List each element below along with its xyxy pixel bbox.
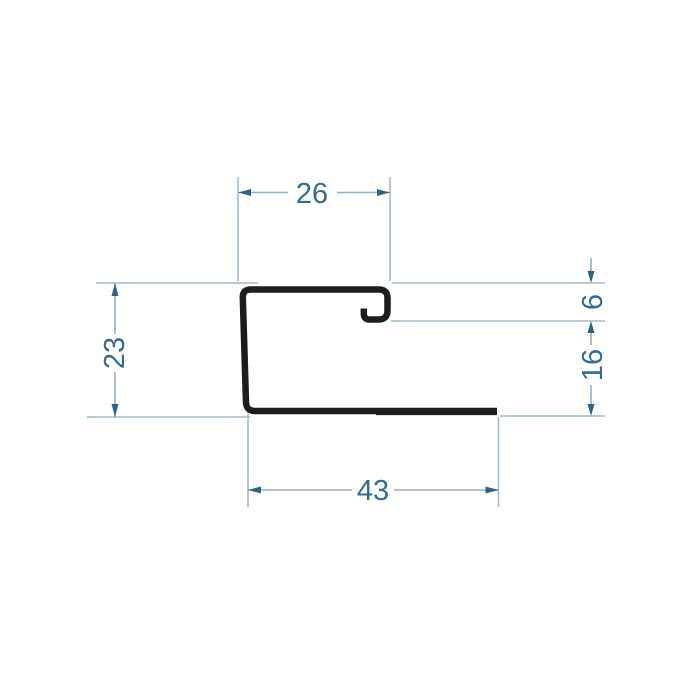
drawing-page: 26 23 6 16 43 xyxy=(0,0,700,700)
dim-left-height-label: 23 xyxy=(99,337,131,369)
arrow-right-icon xyxy=(377,189,390,196)
dim-top-width-label: 26 xyxy=(296,178,328,210)
arrow-up-icon xyxy=(112,283,119,296)
technical-drawing-canvas: 26 23 6 16 43 xyxy=(0,0,700,700)
dimension-labels: 26 23 6 16 43 xyxy=(99,178,609,507)
profile-shape xyxy=(243,290,497,415)
arrow-right-icon xyxy=(486,487,499,494)
dim-right-upper-label: 6 xyxy=(577,294,609,310)
arrow-down-icon xyxy=(588,271,595,283)
dim-right-lower-label: 16 xyxy=(577,349,609,381)
arrow-left-icon xyxy=(238,189,251,196)
arrow-down-icon xyxy=(588,404,595,416)
dimension-arrows xyxy=(112,189,595,494)
dimension-lines xyxy=(115,193,591,491)
arrow-left-icon xyxy=(248,487,261,494)
dim-bottom-width-label: 43 xyxy=(357,475,389,507)
profile-outline xyxy=(243,290,497,412)
arrow-down-icon xyxy=(112,404,119,417)
extension-lines xyxy=(87,177,605,507)
arrow-up-icon xyxy=(588,321,595,333)
